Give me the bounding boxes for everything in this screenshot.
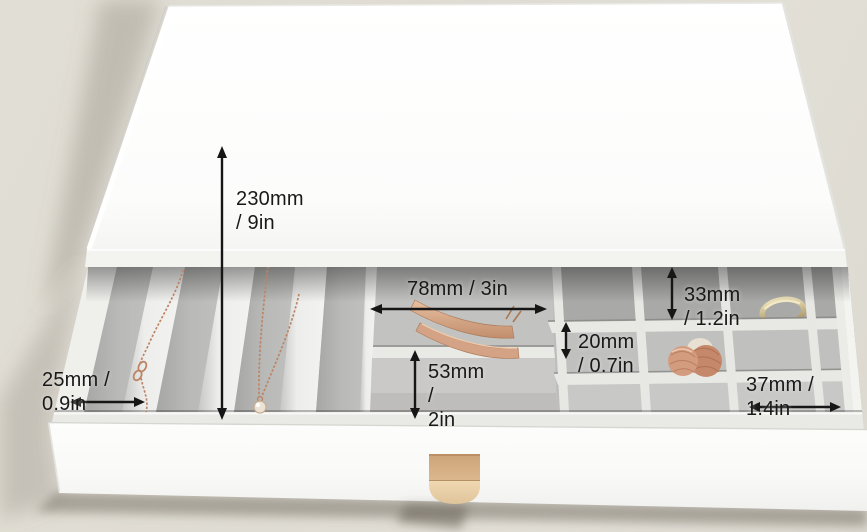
lid-top-surface [87,3,845,249]
lid-front-face [85,249,847,267]
handle-cast-shadow [396,505,468,529]
handle-upper [429,454,480,481]
jewelry-box-illustration [0,0,867,532]
interior-back-shadow [86,267,850,302]
box-lid [84,3,847,267]
product-dimension-image: 230mm / 9in 78mm / 3in 33mm / 1.2in 20mm… [0,0,867,532]
front-deck-shade [370,393,557,412]
drawer-interior [40,260,867,435]
